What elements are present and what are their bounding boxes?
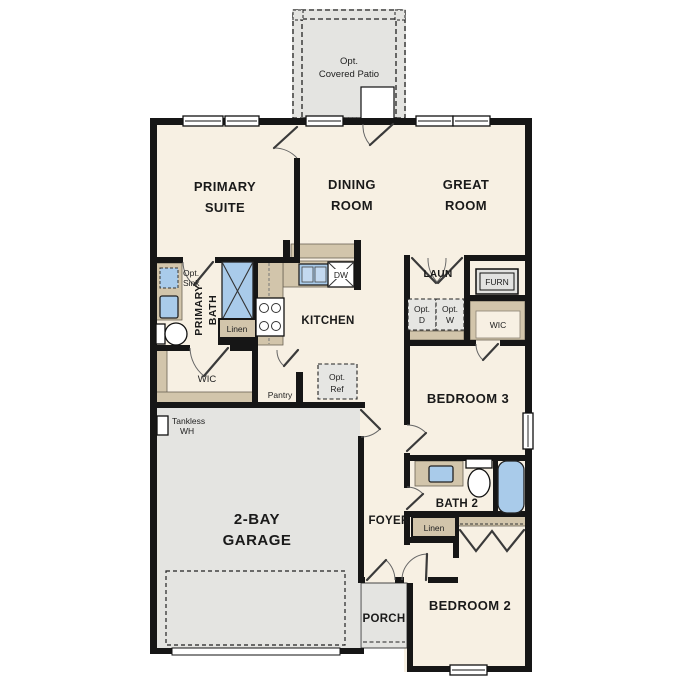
label-tankless-2: WH [180,426,194,436]
window [225,116,259,126]
garage-slab [156,405,360,652]
label-opt-ref-2: Ref [330,384,344,394]
label-kitchen: KITCHEN [301,315,354,327]
label-foyer: FOYER [368,515,410,527]
label-bedroom2: BEDROOM 2 [429,598,511,613]
label-opt-d-1: Opt. [414,304,430,314]
label-great-2: ROOM [445,198,487,213]
label-primary-suite-2: SUITE [205,200,245,215]
label-linen-bath: Linen [227,324,248,334]
stove-icon [256,298,284,336]
floor-foyer [358,405,405,583]
tankless-wh-icon [157,416,168,435]
kitchen-sink-basin [302,267,313,282]
window [183,116,223,126]
covered-patio: Opt. Covered Patio [292,9,406,121]
label-opt-ref-1: Opt. [329,372,345,382]
label-great-1: GREAT [443,177,490,192]
label-furnace: FURN [485,277,509,287]
patio-label-line2: Covered Patio [319,69,379,80]
patio-post-right [395,10,405,20]
label-dining-1: DINING [328,177,376,192]
label-opt-w-2: W [446,315,454,325]
window [306,116,343,126]
label-pantry: Pantry [268,390,293,400]
kitchen-sink-basin [315,267,326,282]
label-garage-2: GARAGE [223,532,292,549]
label-linen2: Linen [424,523,445,533]
window [450,665,487,675]
label-bath2: BATH 2 [436,498,478,510]
toilet-tank-icon [156,324,165,344]
wic-left-bottom-strip [153,392,254,403]
window [416,116,453,126]
label-dw: DW [334,270,348,280]
label-wic-left: WIC [198,374,217,385]
laundry-plumbing-strip [406,331,464,340]
garage-door [172,648,340,655]
label-wic-right: WIC [490,320,507,330]
label-dining-2: ROOM [331,198,373,213]
floor-plan-page: Opt. Covered Patio [0,0,687,687]
label-primary-suite-1: PRIMARY [194,179,256,194]
window [453,116,490,126]
tub-icon [498,461,524,513]
toilet-icon [165,323,187,345]
sink-icon [160,296,178,318]
label-porch: PORCH [362,613,405,625]
floor-plan-drawing: Opt. Covered Patio [0,0,687,687]
window [523,413,533,449]
label-opt-sink-1: Opt. [183,268,199,278]
bath2-toilet-icon [468,469,490,497]
label-tankless-1: Tankless [172,416,205,426]
bath2-sink-icon [429,466,453,482]
label-primary-bath-1: PRIMARY [193,284,205,336]
opt-sink-icon [160,268,178,288]
label-opt-w-1: Opt. [442,304,458,314]
label-garage-1: 2-BAY [234,511,280,528]
bath2-toilet-tank-icon [466,459,492,468]
label-opt-d-2: D [419,315,425,325]
kitchen-upper-shelf [291,244,355,258]
label-bedroom3: BEDROOM 3 [427,391,509,406]
patio-post-left [293,10,303,20]
label-laundry: LAUN [424,269,453,280]
label-primary-bath-2: BATH [207,295,219,325]
patio-label-line1: Opt. [340,56,358,67]
patio-door-landing [361,87,394,121]
